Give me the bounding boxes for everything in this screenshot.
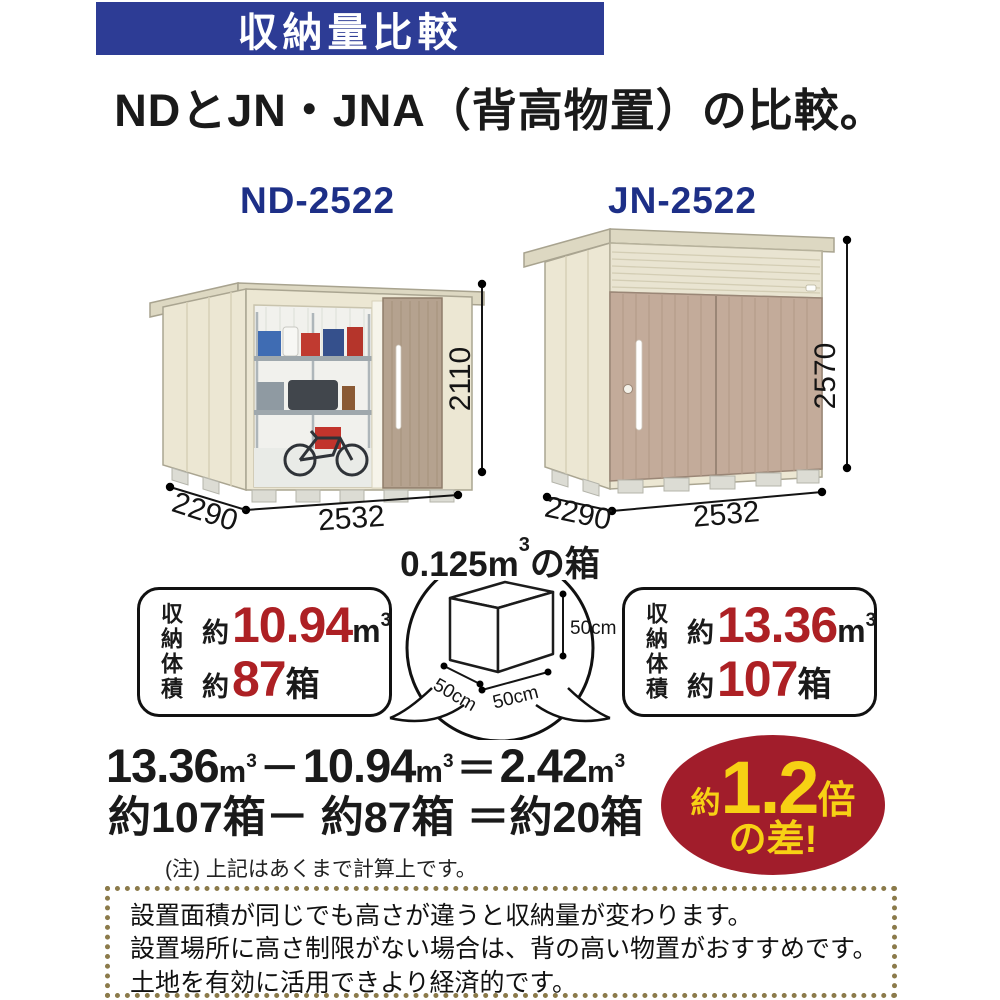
footer-line-3: 土地を有効に活用できより経済的です。	[130, 967, 892, 1000]
volume-label-vertical: 収納体積	[639, 600, 671, 704]
nd-door-handle	[396, 345, 401, 429]
calc-unit: m	[219, 756, 247, 787]
cube-title-suffix: の箱	[530, 545, 600, 584]
nd-volume-row: 約 10.94 m 3	[202, 600, 391, 650]
minus-sign: －	[260, 749, 300, 789]
volume-unit-sup: 3	[381, 611, 392, 630]
boxcount-unit: 箱	[286, 668, 320, 702]
badge-value: 1.2	[721, 751, 818, 825]
cube-title-value: 0.125m	[400, 545, 519, 584]
nd-height-label: 2110	[444, 347, 477, 412]
footer-line-2: 設置場所に高さ制限がない場合は、背の高い物置がおすすめです。	[130, 933, 892, 966]
calc-boxes-line: 約107箱－ 約87箱 ＝約20箱	[108, 797, 643, 840]
calc-volume-line: 13.36m3－10.94m3＝2.42m3	[106, 742, 625, 789]
calc-value-3: 2.42	[500, 742, 587, 789]
badge-suffix: の差!	[729, 821, 818, 859]
calc-value-2: 10.94	[303, 742, 416, 789]
calc-unit-sup: 3	[443, 752, 454, 771]
nd-width-label: 2532	[317, 500, 386, 538]
calc-unit: m	[415, 756, 443, 787]
approx-prefix: 約	[687, 620, 714, 647]
jn-door-handle	[636, 340, 642, 430]
volume-unit: m	[352, 615, 380, 647]
approx-prefix: 約	[202, 620, 229, 647]
volume-label-vertical: 収納体積	[154, 600, 186, 704]
banner-label: 収納量比較	[238, 0, 463, 58]
badge-times: 倍	[817, 782, 855, 820]
nd-depth-label: 2290	[168, 486, 242, 538]
reference-cube	[450, 582, 553, 672]
cube-side-right-label: 50cm	[570, 618, 616, 639]
jn-volume-value: 13.36	[717, 600, 837, 650]
nd-boxcount-row: 約 87 箱	[202, 654, 391, 704]
jn-volume-box: 収納体積 約 13.36 m 3 約 107 箱	[622, 587, 877, 717]
cube-title-sup: 3	[519, 534, 530, 556]
nd-shed-illustration	[150, 283, 484, 502]
equals-sign: ＝	[457, 749, 497, 789]
nd-volume-value: 10.94	[232, 600, 352, 650]
calc-unit-sup: 3	[246, 752, 257, 771]
difference-badge: 約 1.2 倍 の差!	[661, 735, 885, 875]
section-banner: 収納量比較	[96, 2, 604, 55]
page-title: NDとJN・JNA（背高物置）の比較。	[0, 74, 1000, 139]
approx-prefix: 約	[687, 674, 714, 701]
calc-value-1: 13.36	[106, 742, 219, 789]
jn-height-label: 2570	[809, 343, 842, 410]
approx-prefix: 約	[202, 674, 229, 701]
jn-width-label: 2532	[691, 495, 760, 534]
volume-unit: m	[837, 615, 865, 647]
calc-unit-sup: 3	[615, 752, 626, 771]
calc-unit: m	[587, 756, 615, 787]
jn-shed-illustration	[524, 229, 834, 496]
jn-boxcount-value: 107	[717, 654, 797, 704]
calc-note: (注) 上記はあくまで計算上です。	[165, 853, 477, 883]
storage-comparison-infographic: 収納量比較 NDとJN・JNA（背高物置）の比較。 ND-2522 JN-252…	[0, 0, 1000, 1000]
footer-note-box: 設置面積が同じでも高さが違うと収納量が変わります。 設置場所に高さ制限がない場合…	[105, 886, 897, 998]
footer-line-1: 設置面積が同じでも高さが違うと収納量が変わります。	[130, 900, 892, 933]
jn-depth-label: 2290	[542, 491, 614, 537]
jn-volume-row: 約 13.36 m 3	[687, 600, 876, 650]
nd-volume-box: 収納体積 約 10.94 m 3 約 87 箱	[137, 587, 392, 717]
nd-boxcount-value: 87	[232, 654, 286, 704]
boxcount-unit: 箱	[797, 668, 831, 702]
badge-approx: 約	[691, 789, 721, 819]
jn-door-lock	[624, 385, 633, 394]
jn-boxcount-row: 約 107 箱	[687, 654, 876, 704]
volume-unit-sup: 3	[866, 611, 877, 630]
cube-title: 0.125m3の箱	[370, 536, 630, 580]
